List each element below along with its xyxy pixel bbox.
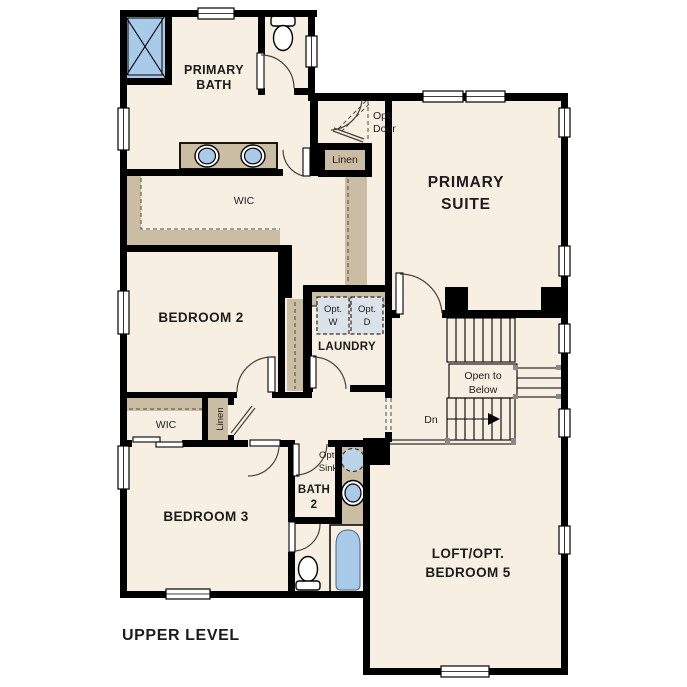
svg-text:2: 2 <box>311 499 318 511</box>
toilet-bath2 <box>296 557 320 591</box>
bathtub <box>330 525 365 595</box>
svg-text:Below: Below <box>469 384 498 396</box>
label-opt-washer: Opt. <box>324 304 342 315</box>
svg-text:BEDROOM 5: BEDROOM 5 <box>425 565 510 580</box>
room-label-loft: LOFT/OPT. <box>432 546 505 561</box>
bath2-compartment-door <box>289 522 295 552</box>
svg-text:BATH: BATH <box>196 78 231 92</box>
room-label-bedroom2: BEDROOM 2 <box>158 310 243 325</box>
label-open-to-below: Open to <box>464 370 502 382</box>
label-linen-lower: Linen <box>215 407 226 430</box>
label-dn: Dn <box>424 414 438 426</box>
bath2-door <box>293 444 299 476</box>
shower <box>124 14 166 79</box>
label-opt-dryer: Opt. <box>358 304 376 315</box>
label-opt-sink: Opt. <box>319 450 337 461</box>
room-label-primary-bath: PRIMARY <box>184 63 244 77</box>
laundry-door <box>310 356 316 388</box>
wic-door <box>303 148 310 176</box>
floor-plan: PRIMARY BATH WIC Linen Opt. Door PRIMARY… <box>0 0 687 687</box>
wc-door <box>257 53 264 89</box>
toilet-primary <box>271 16 295 51</box>
plan-title: UPPER LEVEL <box>122 627 240 644</box>
optional-sink <box>342 449 365 472</box>
svg-text:Sink: Sink <box>319 463 338 474</box>
room-label-bedroom3: BEDROOM 3 <box>163 509 248 524</box>
label-linen-upper: Linen <box>332 154 358 166</box>
svg-text:SUITE: SUITE <box>441 196 491 213</box>
room-label-bath2: BATH <box>298 484 330 496</box>
washer-box <box>317 297 349 334</box>
primary-vanity <box>180 143 277 169</box>
svg-text:D: D <box>364 317 371 328</box>
svg-text:W: W <box>329 317 338 328</box>
svg-text:Door: Door <box>373 123 396 135</box>
bedroom2-door <box>268 357 275 392</box>
wic-shelf-left <box>127 176 141 232</box>
label-opt-door: Opt. <box>373 110 393 122</box>
primary-suite-door <box>396 273 403 314</box>
room-label-primary-suite: PRIMARY <box>428 174 505 191</box>
room-label-wic-bed3: WIC <box>156 419 177 431</box>
room-label-wic-primary: WIC <box>234 195 255 207</box>
dryer-box <box>351 297 383 334</box>
bedroom3-door <box>250 440 280 446</box>
room-label-laundry: LAUNDRY <box>318 341 376 353</box>
floor-plan-drawing: PRIMARY BATH WIC Linen Opt. Door PRIMARY… <box>0 0 687 687</box>
wic-shelf-bottom <box>127 230 280 245</box>
